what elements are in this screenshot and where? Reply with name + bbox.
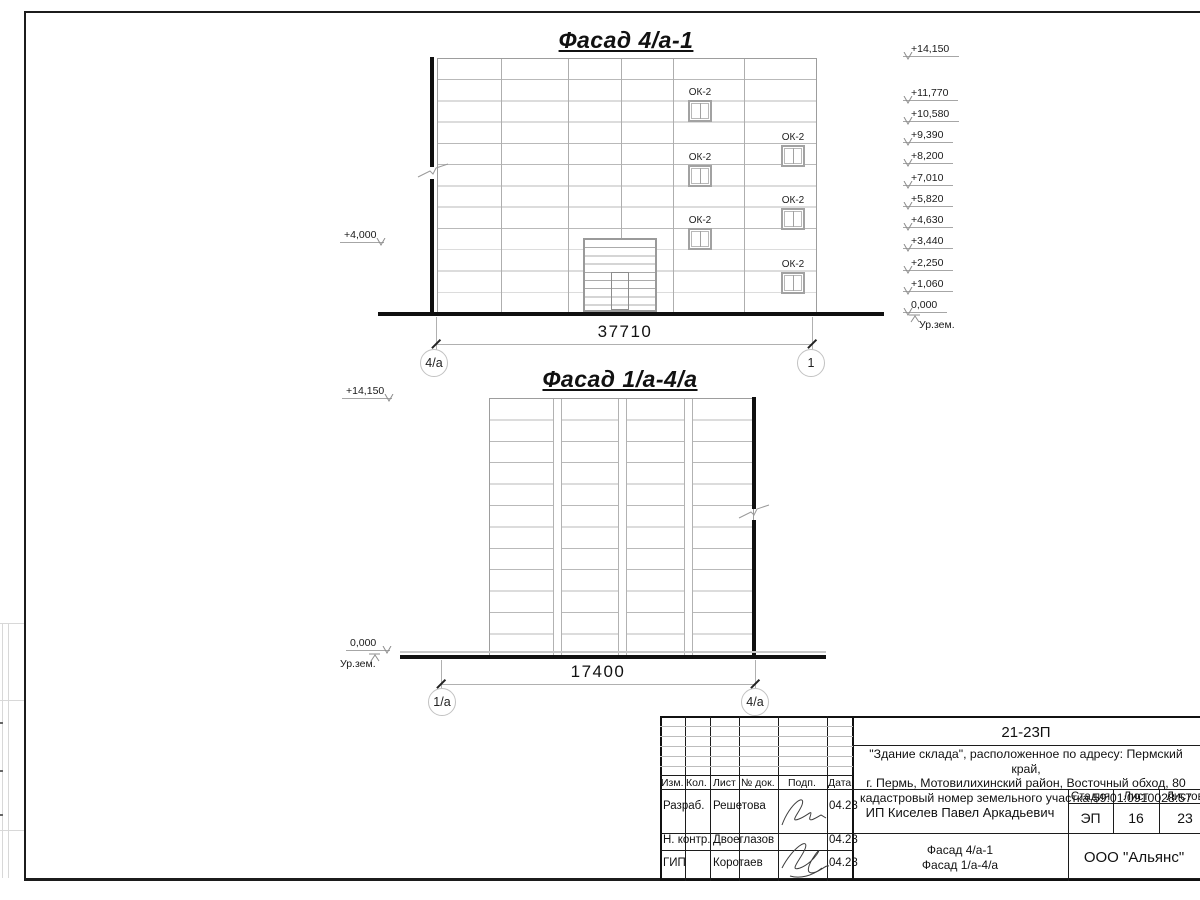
stamp-col-data: Дата — [828, 777, 851, 789]
column-line — [501, 59, 502, 314]
stamp-col-kol: Кол. — [686, 777, 707, 789]
elevation-check-icon — [382, 646, 392, 654]
elevation-mark: +4,000 — [340, 225, 384, 243]
column-strip — [553, 399, 562, 656]
elevation-mark: +1,060 — [903, 274, 953, 292]
elevation-mark: +8,200 — [903, 146, 953, 164]
axis-bubble-1a: 1/a — [428, 688, 456, 716]
elevation-check-icon — [903, 138, 913, 146]
axis-bubble-label: 1/a — [433, 695, 450, 709]
foundation-line — [400, 651, 826, 653]
stage-value: ЭП — [1068, 810, 1113, 826]
elevation-mark: 0,000 — [903, 295, 947, 313]
axis-edge-line — [752, 397, 756, 509]
axis-bubble-4a: 4/a — [741, 688, 769, 716]
stamp-grid — [660, 775, 853, 776]
company-name: ООО "Альянс" — [1068, 849, 1200, 866]
elevation-mark: +14,150 — [342, 381, 392, 399]
elevation-check-icon — [903, 223, 913, 231]
dimension-line — [437, 344, 813, 345]
axis-edge-line — [430, 179, 434, 314]
elevation-mark: +4,630 — [903, 210, 953, 228]
stamp-name: Решетова — [713, 800, 766, 812]
axis-edge-line — [430, 57, 434, 167]
ground-level-mark: Ур.зем. — [905, 314, 955, 333]
window — [781, 272, 805, 294]
margin-line — [0, 700, 24, 701]
window — [781, 208, 805, 230]
ground-check-icon — [369, 653, 381, 662]
window — [688, 228, 712, 250]
drawing-sheet: Фасад 4/а-1 ОК-2 ОК-2 ОК-2 ОК-2 ОК-2 ОК-… — [0, 0, 1200, 900]
stamp-border — [660, 879, 1200, 881]
column-line — [744, 59, 745, 314]
content-title: Фасад 4/а-1 Фасад 1/а-4/а — [852, 843, 1068, 872]
content-title-line1: Фасад 4/а-1 — [852, 843, 1068, 858]
elevation-mark: +5,820 — [903, 189, 953, 207]
signature — [776, 791, 828, 833]
stamp-col-podp: Подп. — [788, 777, 816, 789]
stamp-grid — [660, 789, 853, 790]
elevation-check-icon — [903, 202, 913, 210]
column-line — [568, 59, 569, 314]
elevation-check-icon — [384, 394, 394, 402]
elevation-mark: +7,010 — [903, 168, 953, 186]
stamp-col-doc: № док. — [741, 777, 775, 789]
dimension-text: 37710 — [565, 322, 685, 342]
elevation-check-icon — [903, 52, 913, 60]
stamp-grid — [660, 756, 853, 757]
elevation-mark: +9,390 — [903, 125, 953, 143]
stamp-grid — [660, 766, 853, 767]
stamp-name: Коротаев — [713, 857, 763, 869]
axis-bubble-label: 4/a — [425, 356, 442, 370]
dimension-text: 17400 — [538, 662, 658, 682]
elevation-mark: +11,770 — [903, 83, 958, 101]
project-code: 21-23П — [852, 724, 1200, 741]
sheet-label: Лист — [1113, 791, 1159, 803]
stamp-col-list: Лист — [713, 777, 736, 789]
elevation-check-icon — [903, 266, 913, 274]
stamp-grid — [660, 746, 853, 747]
stamp-grid — [660, 736, 853, 737]
project-description-line2: г. Пермь, Мотовилихинский район, Восточн… — [856, 776, 1196, 791]
axis-bubble-1: 1 — [797, 349, 825, 377]
axis-edge-line — [752, 520, 756, 658]
frame-top — [24, 11, 1200, 13]
margin-line — [0, 830, 24, 831]
sheet-number: 16 — [1113, 810, 1159, 826]
elevation-mark: +14,150 — [903, 39, 959, 57]
column-strip — [684, 399, 693, 656]
axis-bubble-label: 4/a — [746, 695, 763, 709]
elevation-mark: 0,000 — [346, 633, 390, 651]
margin-mark — [0, 722, 3, 724]
margin-line — [2, 623, 3, 878]
gate-door — [583, 238, 657, 312]
elevation-check-icon — [903, 181, 913, 189]
facade2-building — [489, 398, 754, 657]
window-label: ОК-2 — [685, 87, 715, 98]
elevation-mark: +2,250 — [903, 253, 953, 271]
ground-line — [400, 655, 826, 659]
window-label: ОК-2 — [778, 132, 808, 143]
window-label: ОК-2 — [778, 259, 808, 270]
stamp-grid — [710, 716, 711, 881]
facade1-title: Фасад 4/а-1 — [486, 27, 766, 54]
ground-level-mark: Ур.зем. — [340, 653, 376, 672]
sheets-total: 23 — [1159, 810, 1200, 826]
stamp-name: Двоеглазов — [713, 834, 774, 846]
stamp-grid — [852, 833, 1200, 834]
stamp-border — [660, 716, 662, 881]
ground-check-icon — [909, 314, 921, 323]
wicket-door — [611, 272, 629, 310]
elevation-check-icon — [903, 159, 913, 167]
stamp-grid — [852, 745, 1200, 746]
sheets-label: Листов — [1159, 791, 1200, 803]
break-mark — [738, 504, 770, 520]
axis-bubble-label: 1 — [808, 356, 815, 370]
elevation-check-icon — [903, 96, 913, 104]
project-description-line1: "Здание склада", расположенное по адресу… — [856, 747, 1196, 776]
elevation-mark: +10,580 — [903, 104, 959, 122]
stamp-border — [660, 716, 1200, 718]
window-label: ОК-2 — [685, 152, 715, 163]
facade2-title: Фасад 1/а-4/а — [480, 366, 760, 393]
stage-label: Стадия — [1068, 791, 1113, 803]
window — [781, 145, 805, 167]
elevation-check-icon — [903, 244, 913, 252]
break-mark — [417, 163, 449, 179]
dimension-line — [441, 684, 755, 685]
elevation-check-icon — [376, 238, 386, 246]
signature — [772, 834, 832, 880]
margin-line — [0, 623, 24, 624]
client-name: ИП Киселев Павел Аркадьевич — [852, 805, 1068, 820]
window — [688, 100, 712, 122]
window — [688, 165, 712, 187]
stamp-role: Н. контр. — [663, 834, 710, 846]
stamp-grid — [660, 726, 853, 727]
column-strip — [618, 399, 627, 656]
stamp-role: Разраб. — [663, 800, 704, 812]
margin-mark — [0, 770, 3, 772]
ground-label: Ур.зем. — [919, 314, 955, 331]
window-label: ОК-2 — [685, 215, 715, 226]
margin-line — [8, 623, 9, 878]
stamp-col-izm: Изм. — [661, 777, 684, 789]
extension-line — [436, 317, 437, 353]
elevation-mark: +3,440 — [903, 231, 953, 249]
content-title-line2: Фасад 1/а-4/а — [852, 858, 1068, 873]
extension-line — [812, 317, 813, 353]
frame-left — [24, 11, 26, 880]
margin-mark — [0, 814, 3, 816]
column-line — [673, 59, 674, 314]
stamp-role: ГИП — [663, 857, 686, 869]
ground-line — [378, 312, 884, 316]
elevation-check-icon — [903, 287, 913, 295]
axis-bubble-4a: 4/a — [420, 349, 448, 377]
elevation-check-icon — [903, 117, 913, 125]
window-label: ОК-2 — [778, 195, 808, 206]
